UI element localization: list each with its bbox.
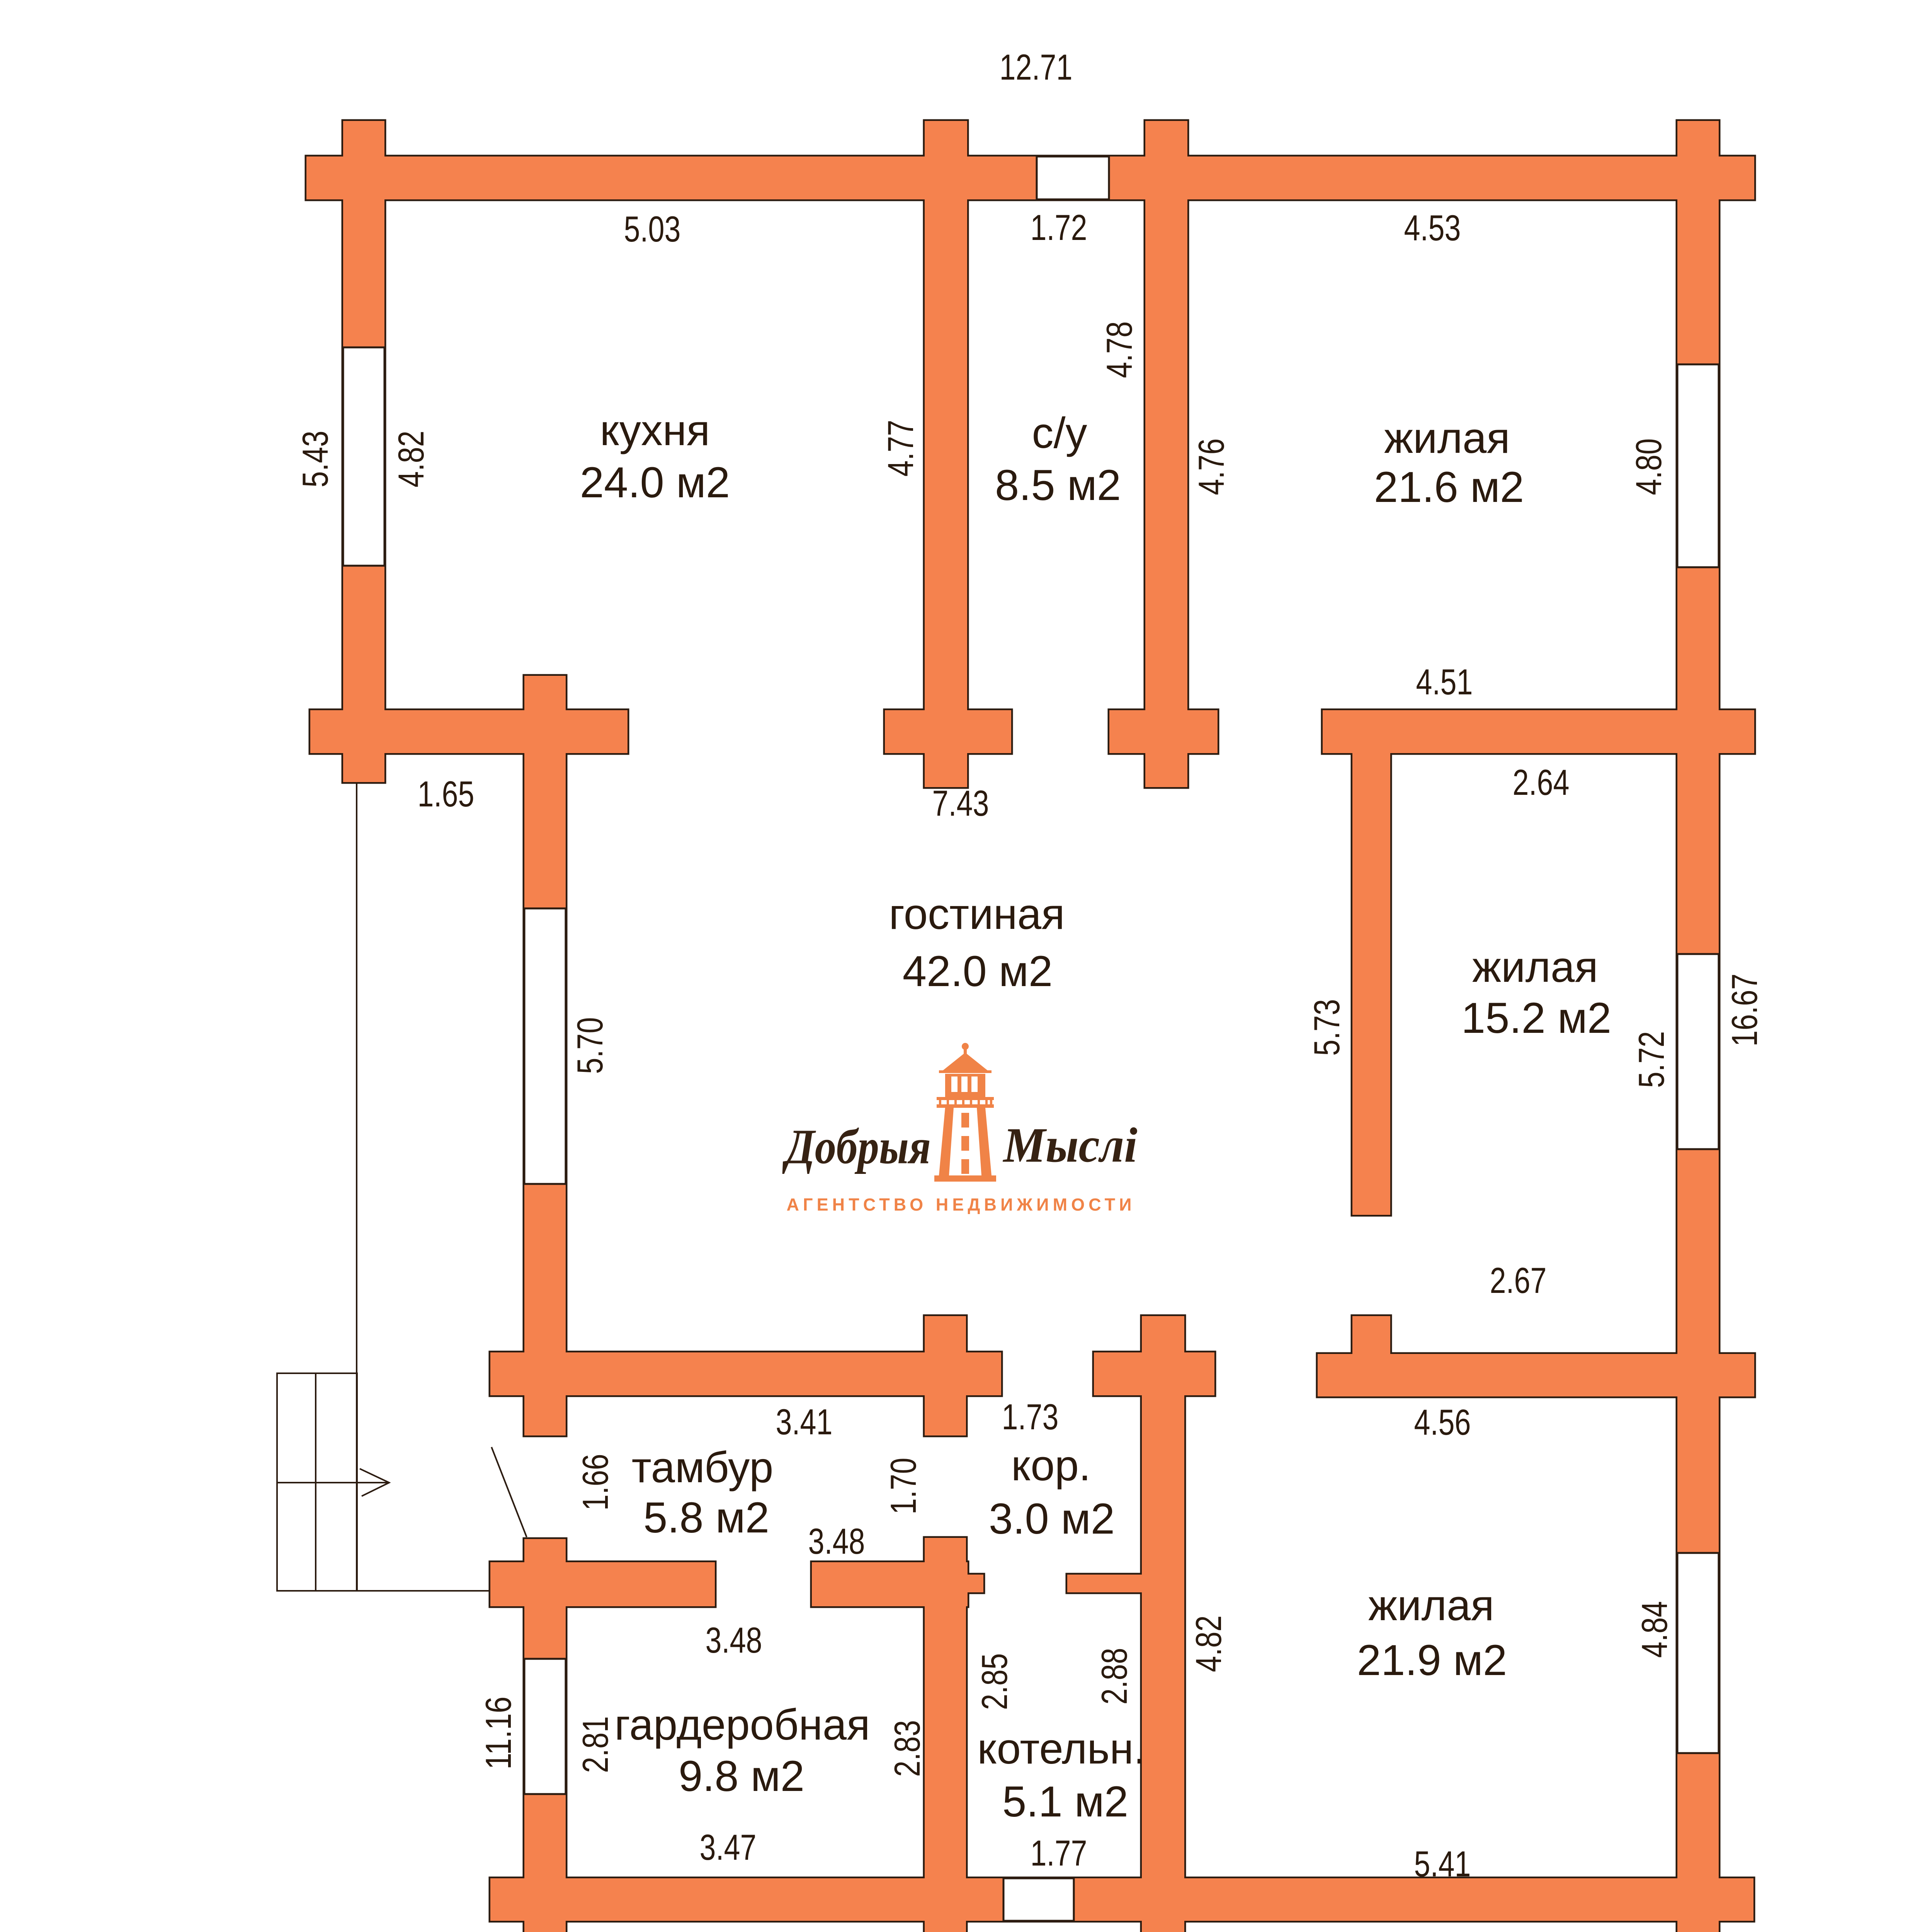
svg-text:7.43: 7.43	[932, 783, 989, 823]
svg-text:5.43: 5.43	[295, 431, 335, 488]
svg-text:Мыслі: Мыслі	[1003, 1117, 1138, 1172]
svg-text:кухня: кухня	[600, 406, 710, 454]
svg-text:Добрыя: Добрыя	[782, 1119, 931, 1174]
svg-text:1.65: 1.65	[418, 774, 474, 814]
svg-text:2.81: 2.81	[575, 1716, 616, 1773]
svg-text:4.77: 4.77	[880, 420, 921, 477]
svg-text:гостиная: гостиная	[889, 890, 1065, 938]
svg-text:9.8 м2: 9.8 м2	[679, 1752, 804, 1800]
svg-text:5.70: 5.70	[570, 1017, 610, 1074]
svg-text:5.03: 5.03	[624, 209, 681, 249]
svg-text:5.1 м2: 5.1 м2	[1002, 1777, 1128, 1826]
svg-text:1.72: 1.72	[1031, 207, 1087, 248]
svg-text:21.9 м2: 21.9 м2	[1357, 1636, 1507, 1684]
svg-text:тамбур: тамбур	[632, 1443, 774, 1492]
svg-text:4.78: 4.78	[1099, 321, 1139, 378]
svg-text:1.73: 1.73	[1002, 1396, 1059, 1437]
svg-text:42.0 м2: 42.0 м2	[903, 947, 1053, 995]
svg-text:4.51: 4.51	[1416, 662, 1473, 702]
svg-text:4.53: 4.53	[1404, 207, 1461, 248]
svg-text:24.0 м2: 24.0 м2	[580, 458, 730, 507]
svg-text:21.6 м2: 21.6 м2	[1374, 463, 1524, 511]
svg-text:3.48: 3.48	[706, 1620, 762, 1660]
svg-text:2.85: 2.85	[974, 1653, 1015, 1710]
svg-text:АГЕНТСТВО НЕДВИЖИМОСТИ: АГЕНТСТВО НЕДВИЖИМОСТИ	[787, 1195, 1136, 1214]
svg-text:котельн.: котельн.	[977, 1725, 1145, 1773]
svg-text:с/у: с/у	[1032, 409, 1087, 457]
svg-text:8.5 м2: 8.5 м2	[995, 461, 1121, 509]
svg-text:2.67: 2.67	[1490, 1260, 1547, 1301]
svg-text:жилая: жилая	[1384, 414, 1510, 462]
svg-text:4.56: 4.56	[1414, 1402, 1471, 1442]
svg-text:4.84: 4.84	[1634, 1601, 1675, 1658]
svg-text:2.64: 2.64	[1513, 762, 1570, 803]
svg-text:1.77: 1.77	[1031, 1833, 1087, 1873]
svg-text:1.70: 1.70	[883, 1458, 923, 1515]
svg-text:кор.: кор.	[1011, 1441, 1091, 1490]
svg-text:4.80: 4.80	[1628, 439, 1669, 495]
svg-text:3.41: 3.41	[776, 1401, 833, 1442]
svg-text:5.41: 5.41	[1414, 1844, 1471, 1884]
svg-text:жилая: жилая	[1368, 1581, 1494, 1629]
svg-text:3.47: 3.47	[700, 1827, 757, 1867]
svg-text:2.83: 2.83	[887, 1720, 927, 1777]
svg-text:5.8 м2: 5.8 м2	[643, 1493, 769, 1542]
svg-text:5.72: 5.72	[1631, 1031, 1672, 1088]
svg-text:15.2 м2: 15.2 м2	[1461, 994, 1611, 1042]
svg-text:16.67: 16.67	[1724, 974, 1765, 1047]
svg-text:12.71: 12.71	[1000, 47, 1073, 87]
svg-text:4.82: 4.82	[1188, 1616, 1229, 1672]
svg-text:5.73: 5.73	[1306, 999, 1347, 1056]
svg-text:4.76: 4.76	[1191, 439, 1231, 495]
svg-text:1.66: 1.66	[575, 1454, 616, 1511]
svg-text:гардеробная: гардеробная	[614, 1701, 870, 1749]
svg-text:2.88: 2.88	[1094, 1648, 1134, 1705]
svg-text:жилая: жилая	[1472, 943, 1598, 991]
svg-text:3.48: 3.48	[808, 1521, 865, 1561]
svg-text:4.82: 4.82	[391, 431, 431, 488]
svg-text:11.16: 11.16	[478, 1697, 519, 1770]
svg-text:3.0 м2: 3.0 м2	[989, 1495, 1115, 1543]
